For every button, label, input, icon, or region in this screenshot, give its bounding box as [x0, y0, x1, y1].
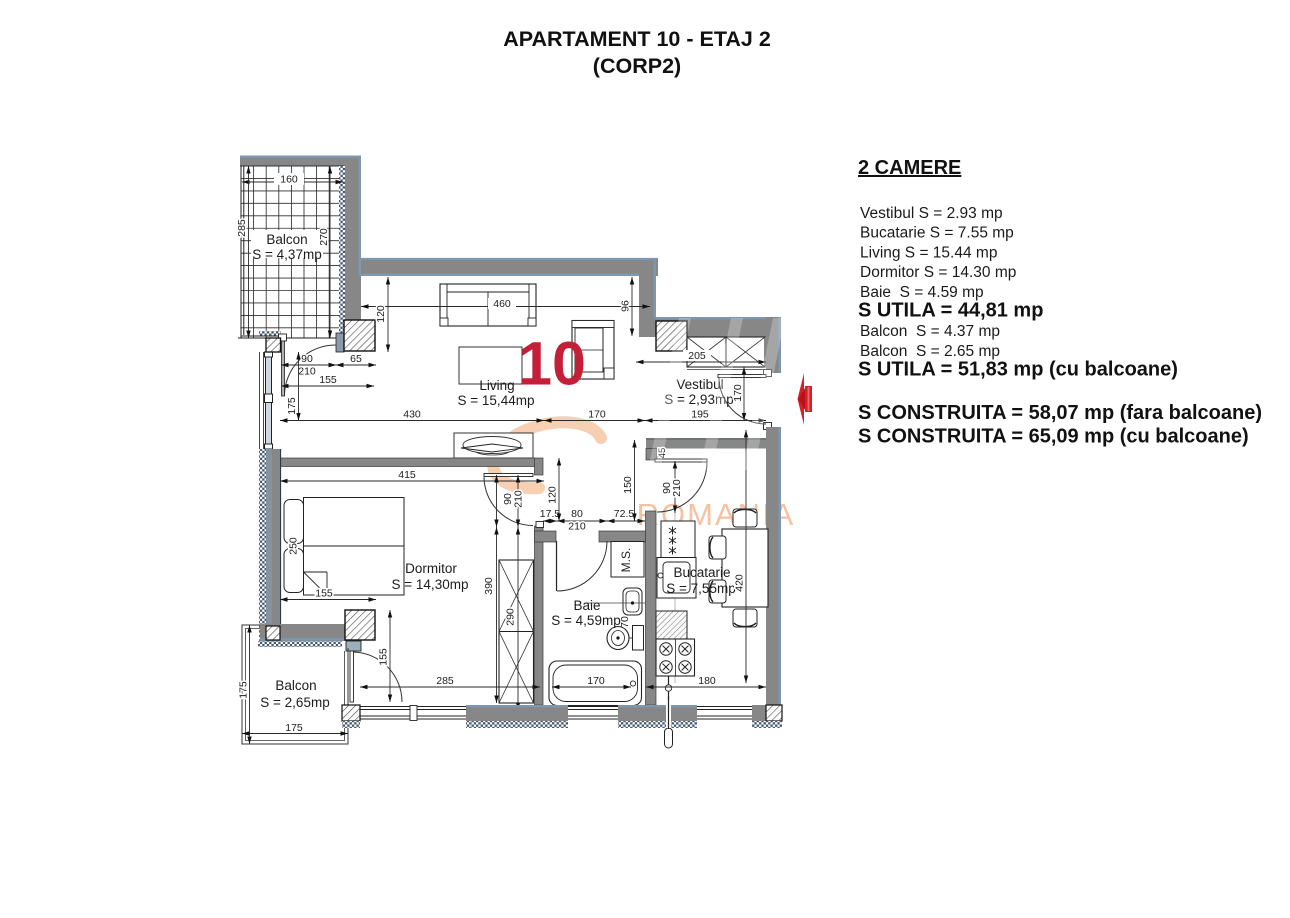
svg-text:Living: Living [479, 378, 514, 393]
svg-text:175: 175 [286, 397, 298, 415]
svg-text:Balcon: Balcon [266, 232, 307, 247]
svg-text:S CONSTRUITA = 58,07 mp (fara: S CONSTRUITA = 58,07 mp (fara balcoane) [858, 402, 1262, 424]
svg-text:72.5: 72.5 [614, 508, 635, 520]
svg-text:65: 65 [350, 353, 362, 365]
svg-text:285: 285 [236, 219, 248, 237]
svg-text:Dormitor: Dormitor [405, 561, 457, 576]
svg-text:Baie: Baie [573, 598, 600, 613]
svg-text:175: 175 [285, 722, 303, 734]
svg-text:Dormitor S = 14.30 mp: Dormitor S = 14.30 mp [860, 264, 1016, 281]
svg-text:170: 170 [588, 409, 606, 421]
svg-text:210: 210 [298, 366, 316, 378]
svg-text:155: 155 [319, 374, 337, 386]
svg-text:Balcon S = 4.37 mp: Balcon S = 4.37 mp [860, 323, 1000, 340]
svg-text:Living S = 15.44 mp: Living S = 15.44 mp [860, 244, 997, 261]
svg-text:155: 155 [315, 588, 333, 600]
svg-text:120: 120 [375, 305, 387, 323]
svg-text:S UTILA = 51,83 mp (cu balcoan: S UTILA = 51,83 mp (cu balcoane) [858, 359, 1178, 381]
svg-text:Balcon S = 2.65 mp: Balcon S = 2.65 mp [860, 343, 1000, 360]
svg-text:160: 160 [280, 174, 298, 186]
svg-text:Vestibul S = 2.93 mp: Vestibul S = 2.93 mp [860, 205, 1003, 222]
svg-text:210: 210 [568, 521, 586, 533]
svg-text:90: 90 [301, 353, 313, 365]
svg-text:170: 170 [587, 675, 605, 687]
svg-text:S UTILA = 44,81 mp: S UTILA = 44,81 mp [858, 300, 1043, 322]
svg-text:210: 210 [671, 479, 683, 497]
svg-text:120: 120 [547, 486, 559, 504]
svg-text:415: 415 [398, 469, 416, 481]
svg-text:S = 4,37mp: S = 4,37mp [252, 247, 321, 262]
svg-text:460: 460 [493, 298, 511, 310]
svg-text:Baie S = 4.59 mp: Baie S = 4.59 mp [860, 284, 984, 301]
svg-text:M.S.: M.S. [619, 548, 633, 573]
svg-text:70: 70 [619, 616, 631, 628]
svg-text:155: 155 [378, 648, 390, 666]
svg-text:Bucatarie: Bucatarie [673, 565, 730, 580]
svg-text:175: 175 [238, 681, 250, 699]
svg-text:96: 96 [620, 300, 632, 312]
svg-text:290: 290 [505, 608, 517, 626]
svg-text:80: 80 [571, 508, 583, 520]
svg-text:250: 250 [288, 537, 300, 555]
svg-text:S = 2,65mp: S = 2,65mp [260, 695, 329, 710]
svg-text:10: 10 [518, 330, 586, 398]
svg-text:APARTAMENT 10 - ETAJ 2: APARTAMENT 10 - ETAJ 2 [503, 27, 771, 51]
svg-text:285: 285 [436, 675, 454, 687]
svg-text:195: 195 [691, 409, 709, 421]
svg-text:390: 390 [483, 577, 495, 595]
svg-text:S = 7,55mp: S = 7,55mp [666, 581, 735, 596]
svg-text:205: 205 [688, 350, 706, 362]
svg-text:2 CAMERE: 2 CAMERE [858, 157, 961, 179]
svg-text:Balcon: Balcon [275, 678, 316, 693]
svg-text:180: 180 [698, 675, 716, 687]
svg-text:270: 270 [318, 228, 330, 246]
svg-text:S = 4,59mp: S = 4,59mp [551, 613, 620, 628]
svg-text:150: 150 [622, 476, 634, 494]
svg-text:Bucatarie S = 7.55 mp: Bucatarie S = 7.55 mp [860, 225, 1014, 242]
svg-text:210: 210 [513, 490, 525, 508]
svg-text:S CONSTRUITA = 65,09 mp (cu ba: S CONSTRUITA = 65,09 mp (cu balcoane) [858, 426, 1249, 448]
svg-text:170: 170 [732, 384, 744, 402]
svg-text:420: 420 [734, 574, 746, 592]
svg-text:430: 430 [403, 409, 421, 421]
svg-text:(CORP2): (CORP2) [593, 54, 681, 78]
svg-text:S = 14,30mp: S = 14,30mp [392, 577, 469, 592]
